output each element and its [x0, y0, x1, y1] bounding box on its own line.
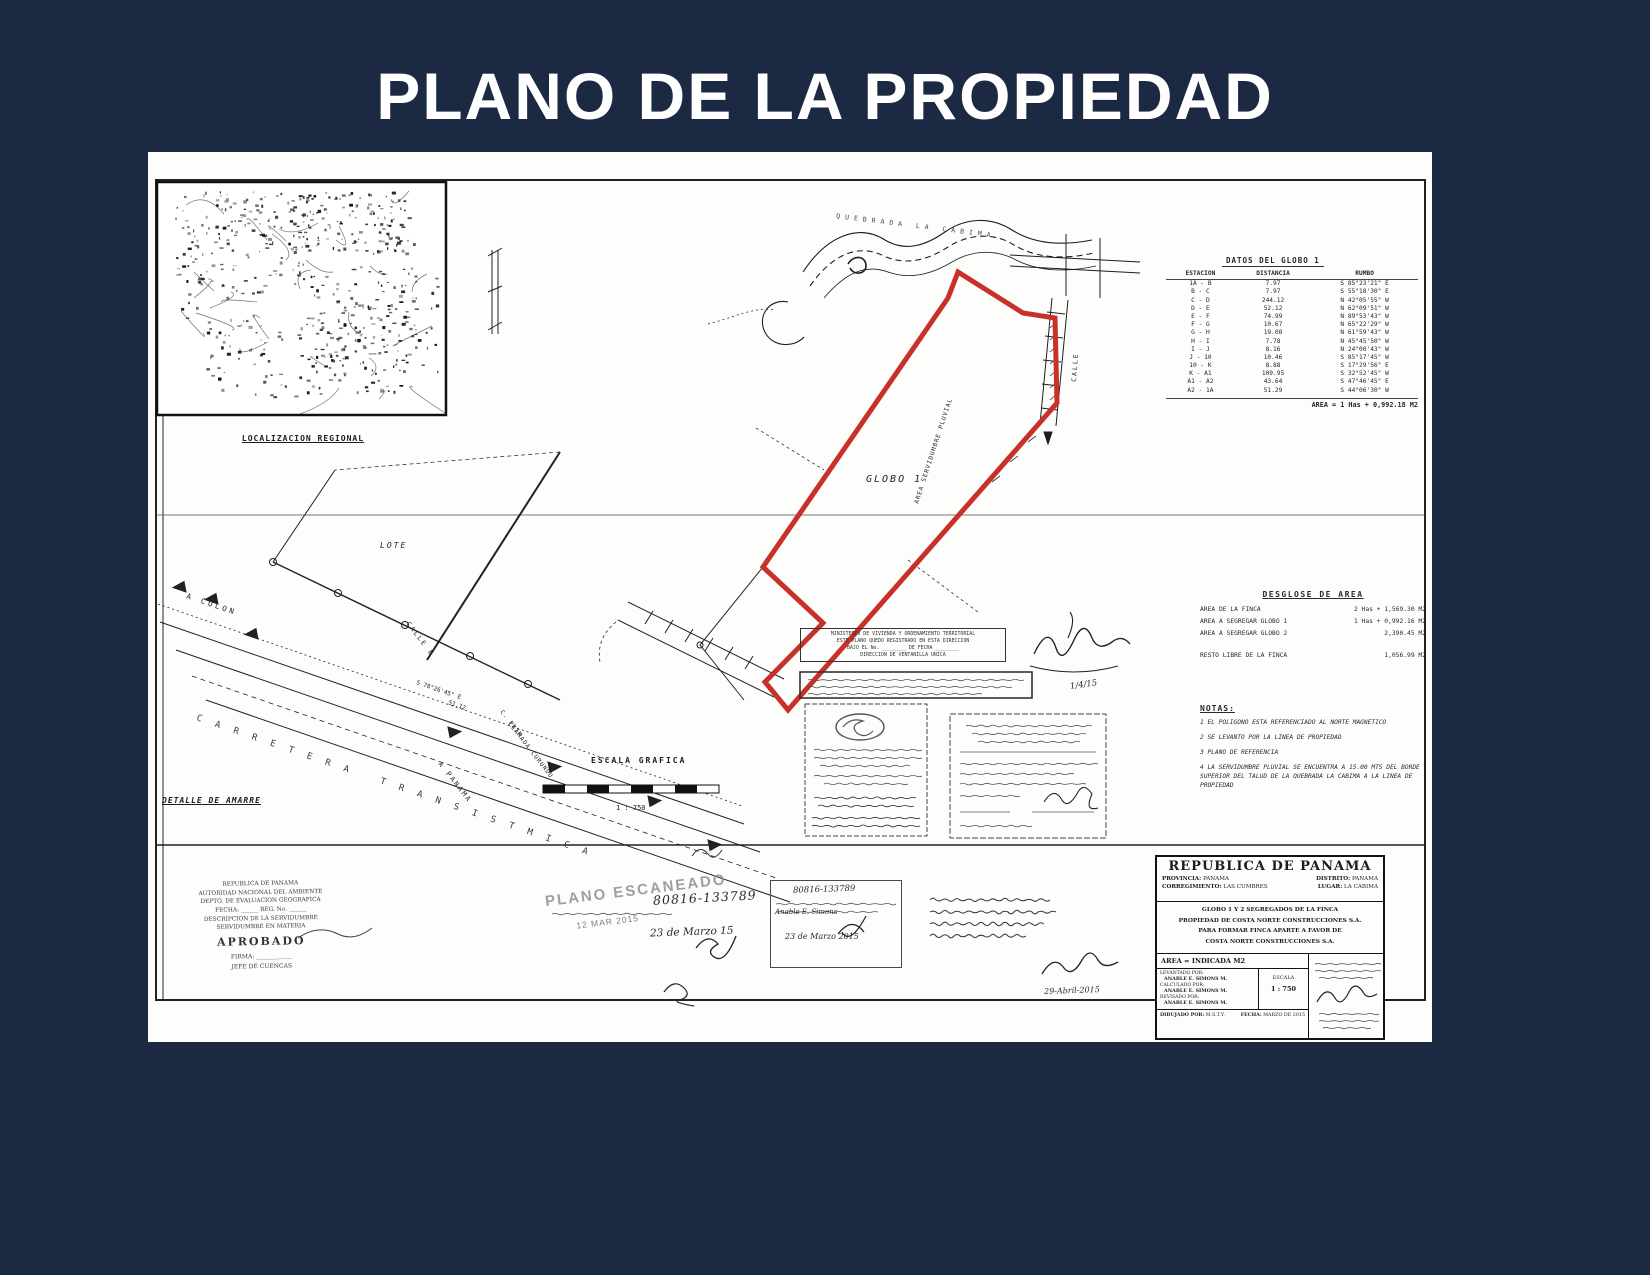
fecha-value: MARZO DE 2015 — [1263, 1013, 1305, 1018]
provincia-distrito-row: PROVINCIA: PANAMA DISTRITO: PANAMA — [1162, 876, 1378, 882]
desglose-block: DESGLOSE DE AREA AREA DE LA FINCA2 Has +… — [1200, 590, 1426, 662]
dibujado-label: DIBUJADO POR: — [1160, 1012, 1204, 1018]
detalle-amarre-label: DETALLE DE AMARRE — [162, 796, 261, 805]
desglose-row: AREA A SEGREGAR GLOBO 11 Has + 0,992.16 … — [1200, 616, 1426, 628]
bearing-distance: 51.12 — [447, 699, 467, 712]
table-row: H - I7.78N 45°45'50" W — [1166, 338, 1418, 346]
table-row: B - C7.97S 55°18'30" E — [1166, 288, 1418, 296]
datos-table-block: DATOS DEL GLOBO 1 ESTACION DISTANCIA RUM… — [1166, 248, 1418, 409]
distrito-value: PANAMA — [1352, 876, 1378, 882]
distrito-label: DISTRITO: — [1316, 876, 1350, 882]
plan-document: QUEBRADA LA CABIMA AREA SERVIDUMBRE PLUV… — [148, 152, 1432, 1042]
description-line: PROPIEDAD DE COSTA NORTE CONSTRUCCIONES … — [1157, 916, 1383, 927]
map-caption: LOCALIZACION REGIONAL — [228, 434, 378, 443]
table-row: A1 - A243.64S 47°46'45" E — [1166, 378, 1418, 386]
catastro-stamp-box — [805, 704, 927, 836]
title-block-description: GLOBO 1 Y 2 SEGREGADOS DE LA FINCAPROPIE… — [1157, 902, 1383, 954]
datos-col-rumbo: RUMBO — [1311, 270, 1418, 280]
table-row: I - J8.16N 24°00'43" W — [1166, 346, 1418, 354]
description-line: PARA FORMAR FINCA APARTE A FAVOR DE — [1157, 926, 1383, 937]
escala-label: ESCALA — [1259, 975, 1308, 981]
title-block: REPUBLICA DE PANAMA PROVINCIA: PANAMA DI… — [1155, 855, 1385, 1040]
desglose-title: DESGLOSE DE AREA — [1200, 590, 1426, 599]
carretera-label: CARRETERA TRANSISTMICA — [195, 713, 602, 862]
location-map-frame — [157, 182, 446, 415]
provincia-label: PROVINCIA: — [1162, 876, 1201, 882]
title-block-signature-cell — [1309, 954, 1383, 1038]
miviot-line: ESTE PLANO QUEDO REGISTRADO EN ESTA DIRE… — [804, 638, 1002, 645]
scale-bar — [543, 785, 719, 793]
title-block-left: AREA = INDICADA M2 LEVANTADO POR:ANABLE … — [1157, 954, 1309, 1038]
dibujado-value: M.S.T.Y. — [1206, 1013, 1225, 1018]
anam-line: SERVIDUMBRE EN MATERIA — [175, 922, 347, 934]
area-indicada-line: AREA = INDICADA M2 — [1157, 954, 1308, 969]
slide: PLANO DE LA PROPIEDAD — [0, 0, 1650, 1275]
dibujado-fecha-row: DIBUJADO POR: M.S.T.Y. FECHA: MARZO DE 2… — [1157, 1010, 1308, 1020]
aprobado-text: APROBADO — [175, 933, 347, 952]
registro-stamp-box: 80816-133789 Anable E. Simons 23 de Marz… — [770, 880, 902, 968]
table-row: J - 1010.46S 85°17'45" W — [1166, 354, 1418, 362]
a-colon-label: A COLON — [185, 591, 238, 617]
datos-col-distancia: DISTANCIA — [1235, 270, 1311, 280]
resto-value: 1,056.99 M2 — [1384, 650, 1426, 662]
lugar-label: LUGAR: — [1318, 884, 1342, 890]
datos-table: ESTACION DISTANCIA RUMBO 1A - B7.97S 85°… — [1166, 270, 1418, 395]
title-block-signature — [1309, 954, 1384, 1036]
servidumbre-label: AREA SERVIDUMBRE PLUVIAL — [913, 397, 954, 504]
table-row: E - F74.99N 89°53'43" W — [1166, 313, 1418, 321]
nota-item: 3 PLANO DE REFERENCIA — [1200, 749, 1446, 758]
table-row: C - D244.12N 42°05'55" W — [1166, 297, 1418, 305]
registro-plan-number: 80816-133789 — [793, 882, 897, 896]
miviot-line: MINISTERIO DE VIVIENDA Y ORDENAMIENTO TE… — [804, 631, 1002, 638]
credit-entry: LEVANTADO POR:ANABLE E. SIMONS M. — [1160, 971, 1255, 982]
c-prim-label-2: LLAMADA CURUNDU — [506, 721, 554, 780]
table-row: G - H19.08N 61°59'43" W — [1166, 329, 1418, 337]
credits-row: LEVANTADO POR:ANABLE E. SIMONS M.CALCULA… — [1157, 969, 1308, 1010]
calle-label: CALLE — [1070, 352, 1080, 382]
datos-area-total: AREA = 1 Has + 0,992.18 M2 — [1166, 398, 1418, 409]
resto-label: RESTO LIBRE DE LA FINCA — [1200, 650, 1287, 662]
match-line — [488, 248, 502, 334]
credit-entry: REVISADO POR:ANABLE E. SIMONS M. — [1160, 995, 1255, 1006]
quebrada-label: QUEBRADA LA CABIMA — [836, 212, 996, 239]
desglose-rows: AREA DE LA FINCA2 Has + 1,569.30 M2AREA … — [1200, 604, 1426, 640]
country-title: REPUBLICA DE PANAMA — [1162, 859, 1378, 874]
road-hatch-strip — [599, 602, 784, 697]
calle-e-label: CALLE E — [404, 620, 436, 658]
desglose-row: AREA A SEGREGAR GLOBO 22,390.45 M2 — [1200, 628, 1426, 640]
fecha-label: FECHA: — [1241, 1012, 1262, 1018]
notas-title: NOTAS: — [1200, 704, 1446, 713]
description-line: COSTA NORTE CONSTRUCCIONES S.A. — [1157, 937, 1383, 948]
approval-flourish-signature — [1030, 612, 1130, 672]
corregimiento-label: CORREGIMIENTO: — [1162, 884, 1222, 890]
lugar-value: LA CABIMA — [1344, 884, 1378, 890]
registro-surveyor: Anable E. Simons — [775, 908, 897, 916]
provincia-value: PANAMA — [1203, 876, 1229, 882]
desglose-row: AREA DE LA FINCA2 Has + 1,569.30 M2 — [1200, 604, 1426, 616]
nota-item: 4 LA SERVIDUMBRE PLUVIAL SE ENCUENTRA A … — [1200, 764, 1446, 791]
notas-items: 1 EL POLIGONO ESTA REFERENCIADO AL NORTE… — [1200, 719, 1446, 791]
notas-block: NOTAS: 1 EL POLIGONO ESTA REFERENCIADO A… — [1200, 704, 1446, 797]
anam-approval-stamp: REPUBLICA DE PANAMAAUTORIDAD NACIONAL DE… — [174, 879, 348, 973]
description-line: GLOBO 1 Y 2 SEGREGADOS DE LA FINCA — [1157, 905, 1383, 916]
bearing-note: S 78°26'45" E — [415, 679, 462, 701]
miviot-lines: MINISTERIO DE VIVIENDA Y ORDENAMIENTO TE… — [804, 631, 1002, 659]
datos-table-title: DATOS DEL GLOBO 1 — [1222, 256, 1324, 267]
credit-entry: CALCULADO POR:ANABLE E. SIMONS M. — [1160, 983, 1255, 994]
miviot-line: DIRECCION DE VENTANILLA UNICA — [804, 652, 1002, 659]
miviot-registration-box: MINISTERIO DE VIVIENDA Y ORDENAMIENTO TE… — [800, 628, 1006, 662]
quebrada-stream-lines — [708, 220, 1096, 344]
scale-ratio: 1 : 750 — [616, 804, 646, 812]
title-block-bottom: AREA = INDICADA M2 LEVANTADO POR:ANABLE … — [1157, 954, 1383, 1038]
corregimiento-value: LAS CUMBRES — [1223, 884, 1267, 890]
escala-value: 1 : 750 — [1259, 985, 1308, 993]
scale-label: ESCALA GRAFICA — [591, 756, 686, 765]
corregimiento-lugar-row: CORREGIMIENTO: LAS CUMBRES LUGAR: LA CAB… — [1162, 884, 1378, 890]
miviot-line: BAJO EL No. ________ DE FECHA ________ — [804, 645, 1002, 652]
credits-list: LEVANTADO POR:ANABLE E. SIMONS M.CALCULA… — [1157, 969, 1259, 1009]
amarre-survey-lines — [270, 452, 764, 700]
table-row: D - E52.12N 62°09'51" W — [1166, 305, 1418, 313]
nota-item: 1 EL POLIGONO ESTA REFERENCIADO AL NORTE… — [1200, 719, 1446, 728]
page-title: PLANO DE LA PROPIEDAD — [0, 58, 1650, 134]
ventanilla-stamp-box — [950, 714, 1106, 838]
leader-lines — [756, 428, 978, 612]
registro-date: 23 de Marzo 2015 — [785, 932, 897, 941]
desglose-resto-row: RESTO LIBRE DE LA FINCA 1,056.99 M2 — [1200, 650, 1426, 662]
title-block-header: REPUBLICA DE PANAMA PROVINCIA: PANAMA DI… — [1157, 857, 1383, 902]
lote-label: LOTE — [380, 541, 407, 550]
globo-label: GLOBO 1 — [866, 474, 922, 485]
table-row: A2 - 1A51.29S 44°06'30" W — [1166, 387, 1418, 395]
datos-col-estacion: ESTACION — [1166, 270, 1235, 280]
registro-note-box — [800, 672, 1032, 698]
stamp-signature — [1044, 787, 1098, 808]
nota-item: 2 SE LEVANTO POR LA LINEA DE PROPIEDAD — [1200, 734, 1446, 743]
anam-stamp-lines: REPUBLICA DE PANAMAAUTORIDAD NACIONAL DE… — [174, 879, 347, 934]
escala-cell: ESCALA 1 : 750 — [1259, 969, 1308, 1009]
